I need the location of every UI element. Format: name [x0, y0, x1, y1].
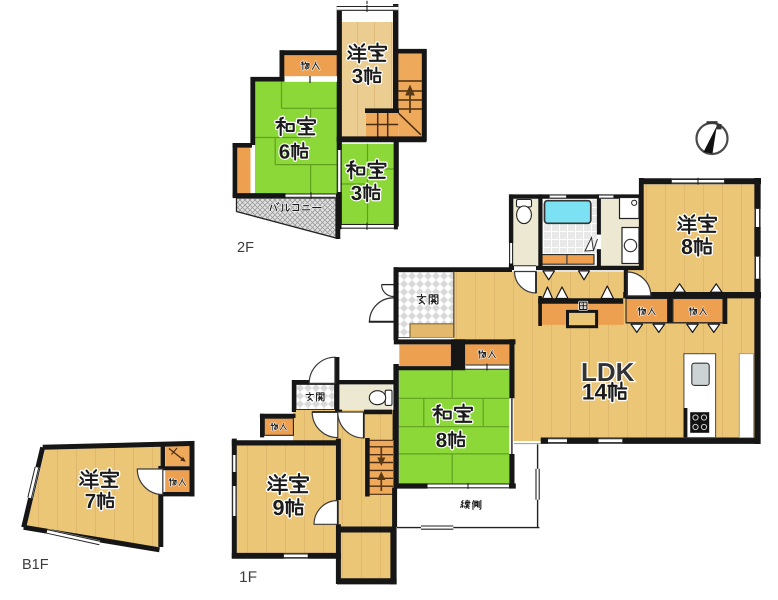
svg-text:8: 8: [436, 429, 447, 452]
svg-text:B1F: B1F: [22, 557, 49, 573]
svg-text:9: 9: [272, 495, 284, 520]
svg-text:3: 3: [352, 65, 363, 88]
svg-text:1F: 1F: [239, 569, 257, 586]
svg-text:3: 3: [351, 182, 362, 205]
svg-text:6: 6: [279, 140, 290, 163]
svg-text:8: 8: [681, 234, 693, 259]
svg-text:7: 7: [85, 490, 96, 513]
svg-text:14: 14: [582, 379, 608, 405]
svg-text:2F: 2F: [237, 240, 254, 256]
